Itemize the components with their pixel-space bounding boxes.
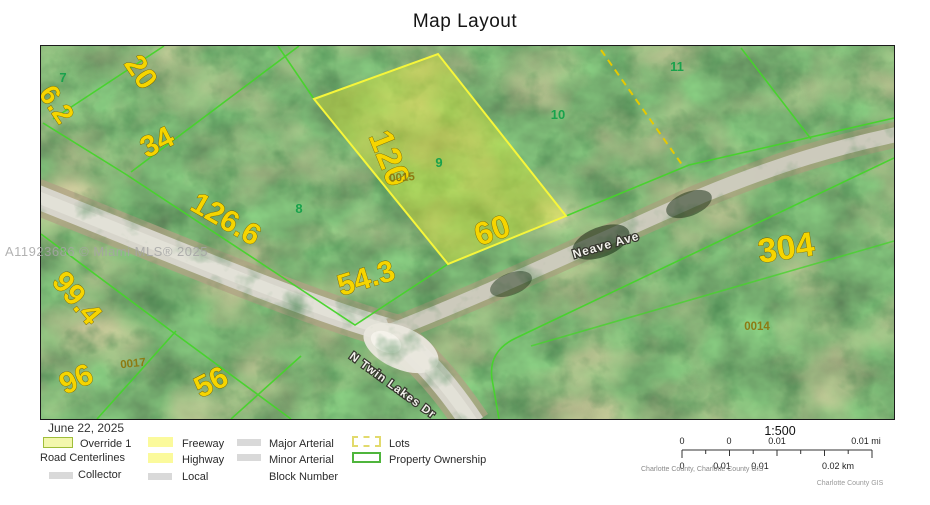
aerial-map-canvas: 20 6.2 34 126.6 120 60 54.3 99.4 96 56 3…	[41, 46, 894, 419]
map-date: June 22, 2025	[48, 421, 124, 435]
legend-label-freeway: Freeway	[182, 438, 224, 450]
collector-swatch	[49, 472, 73, 479]
lot-number-label: 9	[435, 155, 442, 170]
scale-mi-tick: 0.01	[768, 436, 786, 446]
legend-header-road-centerlines: Road Centerlines	[40, 452, 125, 464]
scale-mi-tick: 0	[726, 436, 731, 446]
legend-label-major-arterial: Major Arterial	[269, 438, 334, 450]
legend-label-block-number: Block Number	[269, 471, 338, 483]
legend-label-highway: Highway	[182, 454, 224, 466]
major-arterial-swatch	[237, 439, 261, 446]
minor-arterial-swatch	[237, 454, 261, 461]
highway-swatch	[148, 453, 173, 463]
property-ownership-swatch	[352, 452, 381, 463]
map-layout-page: Map Layout	[0, 0, 930, 505]
legend-label-collector: Collector	[78, 469, 121, 481]
legend-label-lots: Lots	[389, 438, 410, 450]
local-swatch	[148, 473, 172, 480]
scale-mi-tick: 0.01 mi	[851, 436, 881, 446]
scale-bar	[675, 448, 885, 460]
legend-label-override: Override 1	[80, 438, 131, 450]
legend-label-property-ownership: Property Ownership	[389, 454, 486, 466]
lot-number-label: 11	[670, 59, 684, 74]
aerial-map: 20 6.2 34 126.6 120 60 54.3 99.4 96 56 3…	[40, 45, 895, 420]
lot-number-label: 7	[59, 70, 66, 85]
map-attribution: Charlotte County, Charlotte County GIS	[641, 466, 763, 473]
freeway-swatch	[148, 437, 173, 447]
lot-dimension-label: 304	[755, 225, 817, 271]
legend-label-local: Local	[182, 471, 208, 483]
lot-number-label: 10	[551, 107, 565, 122]
scale-km-tick: 0.02 km	[822, 461, 854, 471]
lots-swatch	[352, 436, 381, 447]
lot-number-label: 8	[295, 201, 302, 216]
gis-credit: Charlotte County GIS	[800, 480, 900, 487]
mls-watermark: A11923686 © Miami MLS® 2025	[5, 244, 208, 259]
override-swatch	[43, 437, 73, 448]
block-number-label: 0015	[389, 171, 416, 185]
block-number-label: 0014	[744, 321, 770, 333]
legend-label-minor-arterial: Minor Arterial	[269, 454, 334, 466]
scale-mi-tick: 0	[679, 436, 684, 446]
page-title: Map Layout	[0, 11, 930, 33]
